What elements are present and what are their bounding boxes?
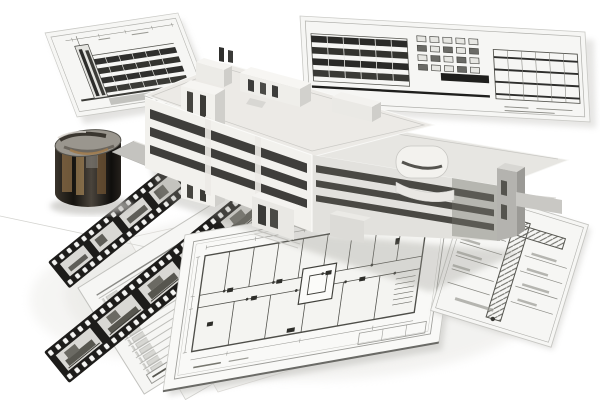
- architectural-collage-image: Tilted board with a building elevation d…: [0, 0, 600, 400]
- panorama-cylinder: Dark sepia cylinder with a wrapped inter…: [50, 127, 134, 215]
- collage-canvas: Tilted board with a building elevation d…: [0, 0, 600, 400]
